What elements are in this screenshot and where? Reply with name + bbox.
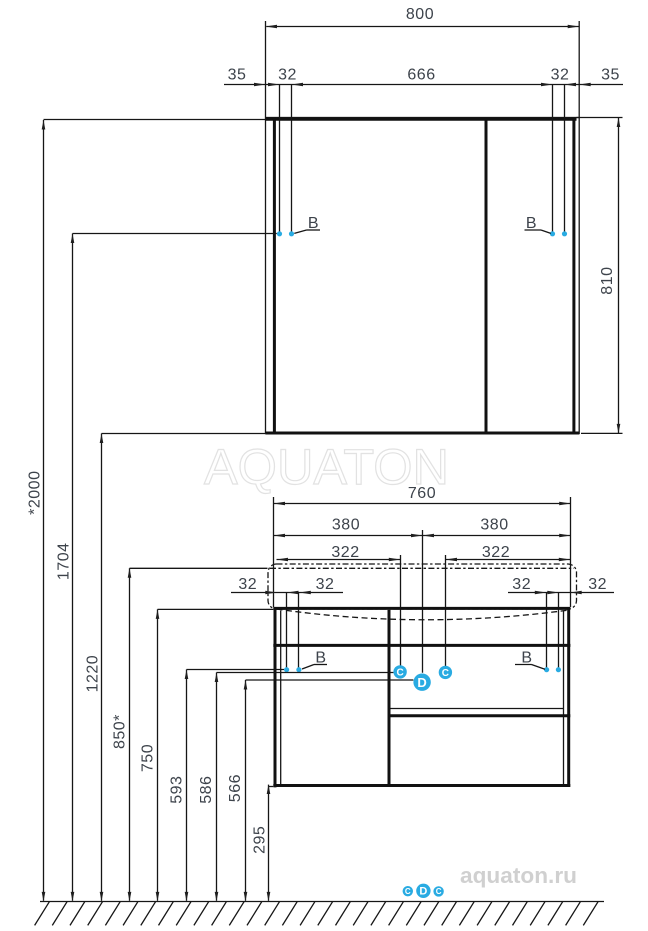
svg-text:C: C xyxy=(442,668,449,679)
svg-text:32: 32 xyxy=(512,576,531,593)
svg-text:D: D xyxy=(419,886,427,898)
svg-text:35: 35 xyxy=(601,67,620,84)
svg-text:35: 35 xyxy=(228,67,247,84)
svg-text:32: 32 xyxy=(316,576,335,593)
svg-text:566: 566 xyxy=(227,774,244,802)
svg-text:32: 32 xyxy=(551,67,570,84)
svg-text:593: 593 xyxy=(169,776,186,804)
svg-text:666: 666 xyxy=(407,67,435,84)
svg-text:D: D xyxy=(417,675,426,690)
svg-text:322: 322 xyxy=(331,544,359,561)
svg-text:750: 750 xyxy=(140,744,157,772)
svg-text:322: 322 xyxy=(482,544,510,561)
svg-text:32: 32 xyxy=(588,576,607,593)
svg-text:800: 800 xyxy=(406,6,434,23)
svg-text:380: 380 xyxy=(480,517,508,534)
svg-text:760: 760 xyxy=(408,485,436,502)
svg-text:C: C xyxy=(405,887,411,896)
svg-text:295: 295 xyxy=(252,826,269,854)
svg-text:586: 586 xyxy=(198,776,215,804)
svg-text:C: C xyxy=(396,667,403,678)
svg-text:32: 32 xyxy=(278,67,297,84)
svg-text:32: 32 xyxy=(238,576,257,593)
svg-text:1220: 1220 xyxy=(85,655,102,693)
svg-text:380: 380 xyxy=(332,517,360,534)
svg-text:810: 810 xyxy=(599,266,616,294)
svg-text:1704: 1704 xyxy=(56,543,73,581)
svg-text:*2000: *2000 xyxy=(27,471,44,515)
svg-text:C: C xyxy=(436,887,442,896)
svg-text:aquaton.ru: aquaton.ru xyxy=(460,863,577,888)
svg-text:850*: 850* xyxy=(112,714,129,749)
